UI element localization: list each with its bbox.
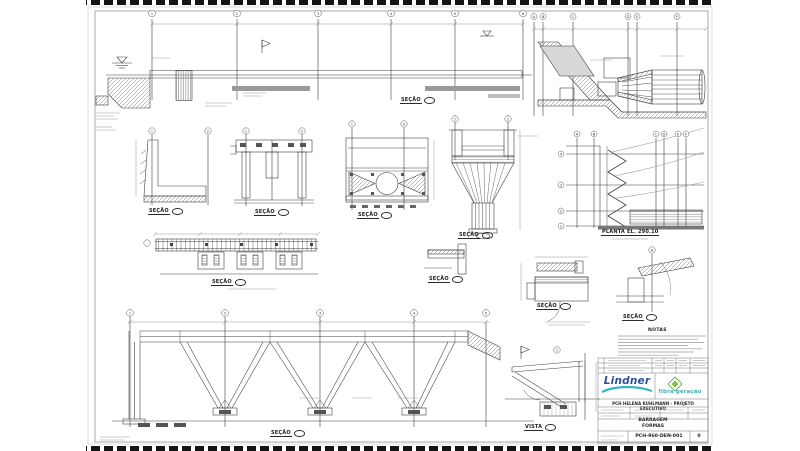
- drawing-sheet: 1 2 3 4 5 6 A B C D E F A B C D E F 4 3: [0, 0, 800, 451]
- section-label: SEÇÃO: [622, 314, 657, 321]
- section-label-text: SEÇÃO: [148, 209, 170, 215]
- scale-oval: [294, 430, 305, 437]
- plan-view: [566, 128, 704, 230]
- section-label-text: SEÇÃO: [536, 304, 558, 310]
- section-label: SEÇÃO: [458, 232, 493, 239]
- water-level-icon: [480, 31, 494, 36]
- section-flag-icon: [262, 40, 270, 53]
- section-flag-icon: [521, 346, 529, 359]
- frame-section: [230, 134, 314, 206]
- drawing-linework: 1 2 3 4 5 6 A B C D E F A B C D E F 4 3: [0, 0, 800, 451]
- grid-bubble-label: A: [576, 131, 579, 136]
- section-label: SEÇÃO: [270, 430, 305, 437]
- hopper-section: [449, 115, 520, 239]
- cropped-top-band: [86, 0, 714, 5]
- water-level-icon: [112, 57, 132, 68]
- scale-oval: [452, 276, 463, 283]
- grid-bubble-label: D: [627, 14, 630, 19]
- section-label: SEÇÃO: [536, 303, 571, 310]
- notes-lines: [618, 336, 706, 355]
- notes-title: NOTAS: [648, 328, 667, 333]
- section-label: SEÇÃO: [400, 97, 435, 104]
- section-label: SEÇÃO: [148, 208, 183, 215]
- drawing-number: PCH-960-DEN-001: [630, 434, 688, 439]
- grid-bubble-label: A: [533, 14, 536, 19]
- section-label: SEÇÃO: [211, 279, 246, 286]
- grid-bubble-label: B: [542, 14, 545, 19]
- grid-bubble-label: C: [655, 131, 658, 136]
- truss-elevation: [112, 317, 534, 427]
- channel-detail: [424, 244, 466, 274]
- grid-bubble-label: F: [676, 14, 678, 19]
- scale-oval: [278, 209, 289, 216]
- grid-bubble-label: B: [593, 131, 596, 136]
- section-label-text: SEÇÃO: [400, 98, 422, 104]
- brand-logo-text: fibra geração: [652, 389, 708, 395]
- scale-oval: [646, 314, 657, 321]
- section-label-text: SEÇÃO: [254, 210, 276, 216]
- section-label: SEÇÃO: [428, 276, 463, 283]
- scale-oval: [235, 279, 246, 286]
- anchor-strip-plan: [153, 232, 320, 274]
- grid-bubble-label: D: [663, 131, 666, 136]
- scale-oval: [424, 97, 435, 104]
- scale-oval: [560, 303, 571, 310]
- plan-label: PLANTA EL. 290.10: [601, 230, 659, 236]
- project-title: PCH HELENA KUHLMANN - PROJETO EXECUTIVO: [599, 401, 707, 411]
- scale-oval: [172, 208, 183, 215]
- vista-detail: [505, 346, 600, 420]
- scale-oval: [545, 424, 556, 431]
- elevation-view: [96, 19, 532, 108]
- grid-bubble-label: C: [572, 14, 575, 19]
- scale-oval: [482, 232, 493, 239]
- section-label: SEÇÃO: [254, 209, 289, 216]
- box-pipe-section: [346, 128, 434, 210]
- section-label-text: SEÇÃO: [270, 431, 292, 437]
- section-label: SEÇÃO: [357, 212, 392, 219]
- section-label-text: SEÇÃO: [622, 315, 644, 321]
- cropped-bottom-band: [86, 446, 714, 451]
- curb-detail: [521, 257, 588, 321]
- lindner-swoosh-icon: [602, 387, 652, 392]
- wing-detail: [616, 254, 694, 312]
- intake-section: [532, 22, 708, 118]
- vista-label-text: VISTA: [524, 425, 543, 431]
- section-label-text: SEÇÃO: [357, 213, 379, 219]
- section-label-text: SEÇÃO: [458, 233, 480, 239]
- grid-bubble-label: A: [651, 247, 654, 252]
- vista-label: VISTA: [524, 424, 556, 431]
- grid-bubble-label: F: [685, 131, 687, 136]
- scale-oval: [381, 212, 392, 219]
- plan-label-text: PLANTA EL. 290.10: [601, 230, 659, 236]
- retaining-wall-section: [136, 135, 208, 205]
- subject-name: FORMAS: [599, 424, 707, 430]
- company-logo-text: Lindner: [600, 375, 654, 387]
- section-label-text: SEÇÃO: [211, 280, 233, 286]
- section-label-text: SEÇÃO: [428, 277, 450, 283]
- revision-number: 0: [691, 434, 707, 439]
- drawing-subject: BARRAGEM FORMAS: [599, 418, 707, 430]
